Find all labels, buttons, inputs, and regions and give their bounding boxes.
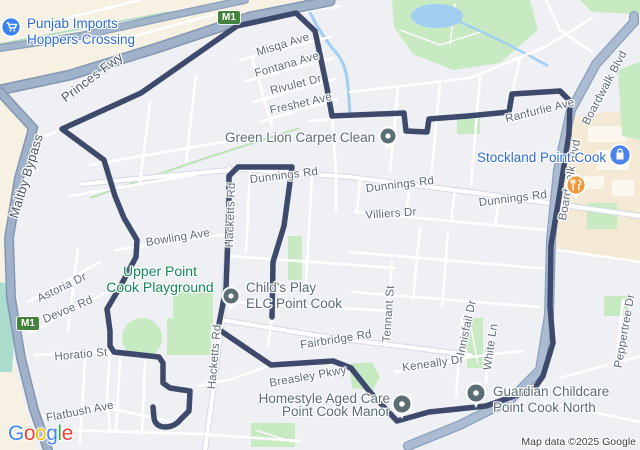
map-canvas[interactable]: Princes Fwy Maltby Bypass Misqa Ave Font…: [0, 0, 640, 450]
logo-letter: e: [62, 422, 73, 445]
m1-route-shield: M1: [17, 317, 39, 330]
poi-label-stockland-point-cook[interactable]: Stockland Point Cook: [477, 150, 606, 166]
poi-label-punjab-imports[interactable]: Punjab Imports Hoppers Crossing: [27, 16, 135, 47]
poi-label-line: Child's Play: [246, 280, 342, 296]
poi-label-green-lion[interactable]: Green Lion Carpet Clean: [225, 130, 375, 146]
poi-label-line: Point Cook North: [493, 400, 609, 416]
restaurant-icon: [564, 173, 588, 203]
park-label-line1: Upper Point: [95, 263, 225, 279]
logo-letter: o: [35, 422, 46, 445]
poi-label-line: Punjab Imports: [27, 16, 135, 32]
poi-label-homestyle[interactable]: Homestyle Aged Care Point Cook Manor: [240, 393, 390, 418]
park-label-line2: Cook Playground: [95, 279, 225, 295]
poi-label-line: Hoppers Crossing: [27, 32, 135, 48]
shopping-cart-icon: [0, 15, 24, 43]
place-pin-icon: [464, 380, 488, 410]
street-label-hacketts-rd-upper: Hacketts Rd: [224, 182, 238, 247]
poi-label-guardian[interactable]: Guardian Childcare Point Cook North: [493, 384, 609, 415]
shopping-bag-icon: [607, 142, 633, 174]
logo-letter: o: [24, 422, 35, 445]
logo-letter: g: [46, 422, 57, 445]
place-pin-icon: [390, 391, 414, 421]
m1-route-shield: M1: [218, 11, 240, 24]
map-attribution: Map data ©2025 Google: [521, 436, 636, 448]
logo-letter: G: [8, 422, 24, 445]
poi-label-line: Guardian Childcare: [493, 384, 609, 400]
poi-label-childs-play[interactable]: Child's Play ELC Point Cook: [246, 280, 342, 311]
pond: [411, 4, 463, 28]
google-logo[interactable]: Google: [8, 422, 73, 446]
poi-label-line: ELC Point Cook: [246, 296, 342, 312]
park-label-upper-point-cook-playground[interactable]: Upper Point Cook Playground: [95, 263, 225, 295]
place-pin-icon: [377, 124, 399, 152]
poi-label-line: Point Cook Manor: [240, 406, 390, 419]
place-pin-icon: [220, 284, 242, 312]
